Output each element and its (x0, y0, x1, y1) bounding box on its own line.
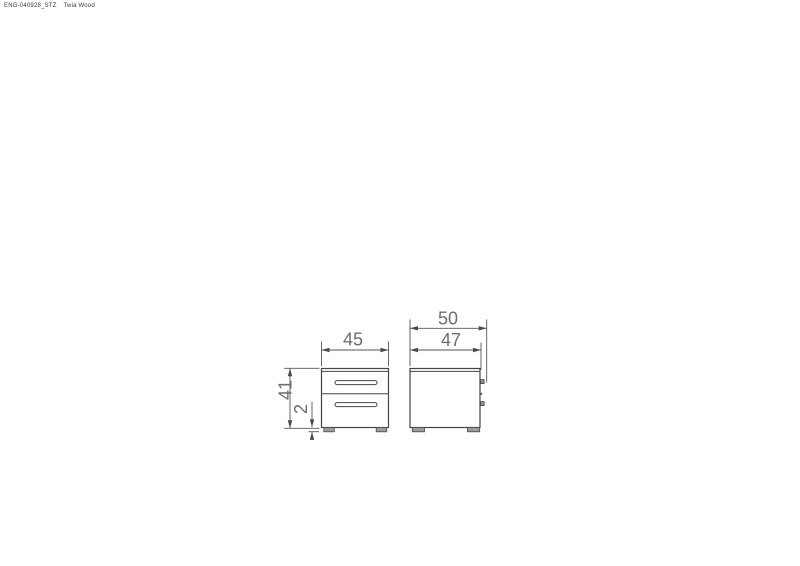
side-divider-edge-mark (481, 393, 483, 395)
side-bottom-handle-profile (481, 402, 485, 406)
drawing-canvas: ENG-040928_STZTwia Wood 45 (0, 0, 800, 566)
front-view (322, 369, 389, 432)
front-foot-height-dim-label: 2 (291, 404, 311, 414)
technical-drawing-svg: 45 41 2 (0, 0, 800, 566)
front-height-dimension: 41 (276, 368, 320, 428)
front-width-dimension: 45 (322, 330, 389, 367)
front-left-foot (324, 428, 335, 432)
side-body-depth-dimension: 47 (410, 330, 481, 370)
side-left-foot (412, 428, 424, 432)
front-width-dim-label: 45 (343, 330, 363, 350)
front-bottom-drawer-handle (335, 403, 377, 407)
front-right-foot (376, 428, 387, 432)
side-top-handle-profile (481, 380, 485, 384)
side-right-foot (468, 428, 480, 432)
front-height-dim-label: 41 (276, 380, 296, 400)
side-view (410, 369, 484, 432)
front-foot-height-dimension: 2 (291, 402, 319, 439)
side-overall-depth-dim-label: 50 (438, 309, 458, 329)
front-top-drawer-handle (335, 381, 377, 385)
side-body-depth-dim-label: 47 (441, 330, 461, 350)
front-cabinet-body (322, 369, 389, 428)
side-cabinet-body (410, 369, 480, 428)
